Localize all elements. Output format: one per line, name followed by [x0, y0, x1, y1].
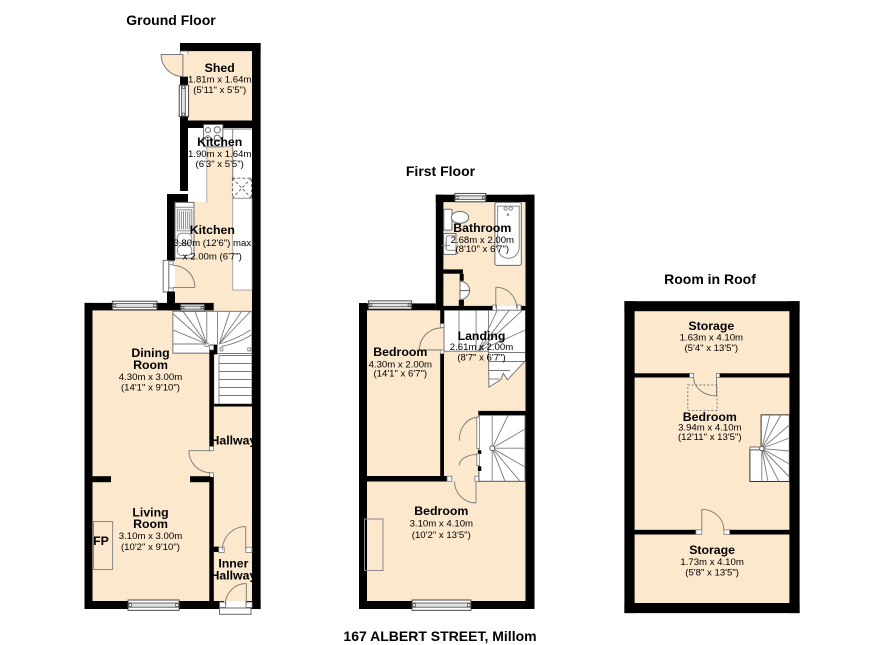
svg-text:FP: FP	[93, 534, 109, 548]
svg-text:1.81m x 1.64m: 1.81m x 1.64m	[188, 74, 251, 85]
svg-text:3.10m x 3.00m: 3.10m x 3.00m	[119, 531, 182, 542]
svg-text:3.10m x 4.10m: 3.10m x 4.10m	[410, 518, 473, 529]
svg-text:(12'11" x 13'5"): (12'11" x 13'5")	[678, 432, 742, 443]
svg-text:Ground Floor: Ground Floor	[126, 12, 216, 28]
svg-text:(5'11" x 5'5"): (5'11" x 5'5")	[193, 85, 246, 96]
svg-text:(5'8" x 13'5"): (5'8" x 13'5")	[685, 567, 739, 578]
svg-text:2.61m x 2.00m: 2.61m x 2.00m	[450, 342, 513, 353]
svg-text:Kitchen: Kitchen	[197, 135, 242, 149]
svg-text:(14'1" x 6'7"): (14'1" x 6'7")	[373, 369, 427, 380]
svg-text:(8'10" x 6'7"): (8'10" x 6'7")	[455, 244, 509, 255]
svg-text:(10'2" x 9'10"): (10'2" x 9'10")	[121, 542, 180, 553]
svg-text:(8'7" x 6'7"): (8'7" x 6'7")	[457, 353, 505, 364]
svg-text:Hallway: Hallway	[211, 568, 257, 582]
svg-text:(14'1" x 9'10"): (14'1" x 9'10")	[121, 383, 180, 394]
svg-text:(10'2" x 13'5"): (10'2" x 13'5")	[412, 530, 471, 541]
svg-text:Room: Room	[133, 517, 168, 531]
svg-text:Hallway: Hallway	[211, 434, 257, 448]
svg-text:Storage: Storage	[688, 319, 734, 333]
svg-text:First Floor: First Floor	[406, 163, 476, 179]
svg-text:167 ALBERT STREET, Millom: 167 ALBERT STREET, Millom	[343, 628, 536, 644]
svg-text:Storage: Storage	[689, 543, 735, 557]
svg-text:Shed: Shed	[205, 61, 235, 75]
svg-text:Kitchen: Kitchen	[190, 223, 235, 237]
svg-text:Landing: Landing	[458, 329, 506, 343]
svg-text:Bedroom: Bedroom	[373, 345, 427, 359]
svg-text:(5'4" x 13'5"): (5'4" x 13'5")	[684, 343, 738, 354]
svg-text:3.80m (12'6") max: 3.80m (12'6") max	[173, 238, 251, 249]
svg-text:Room in Roof: Room in Roof	[664, 271, 756, 287]
svg-text:Bedroom: Bedroom	[683, 410, 737, 424]
svg-text:x 2.00m (6'7"): x 2.00m (6'7")	[183, 252, 242, 263]
svg-text:(6'3" x 5'5"): (6'3" x 5'5")	[196, 159, 244, 170]
svg-text:Bedroom: Bedroom	[414, 504, 468, 518]
svg-text:Bathroom: Bathroom	[453, 221, 511, 235]
svg-text:4.30m x 3.00m: 4.30m x 3.00m	[119, 372, 182, 383]
svg-text:Room: Room	[133, 358, 168, 372]
